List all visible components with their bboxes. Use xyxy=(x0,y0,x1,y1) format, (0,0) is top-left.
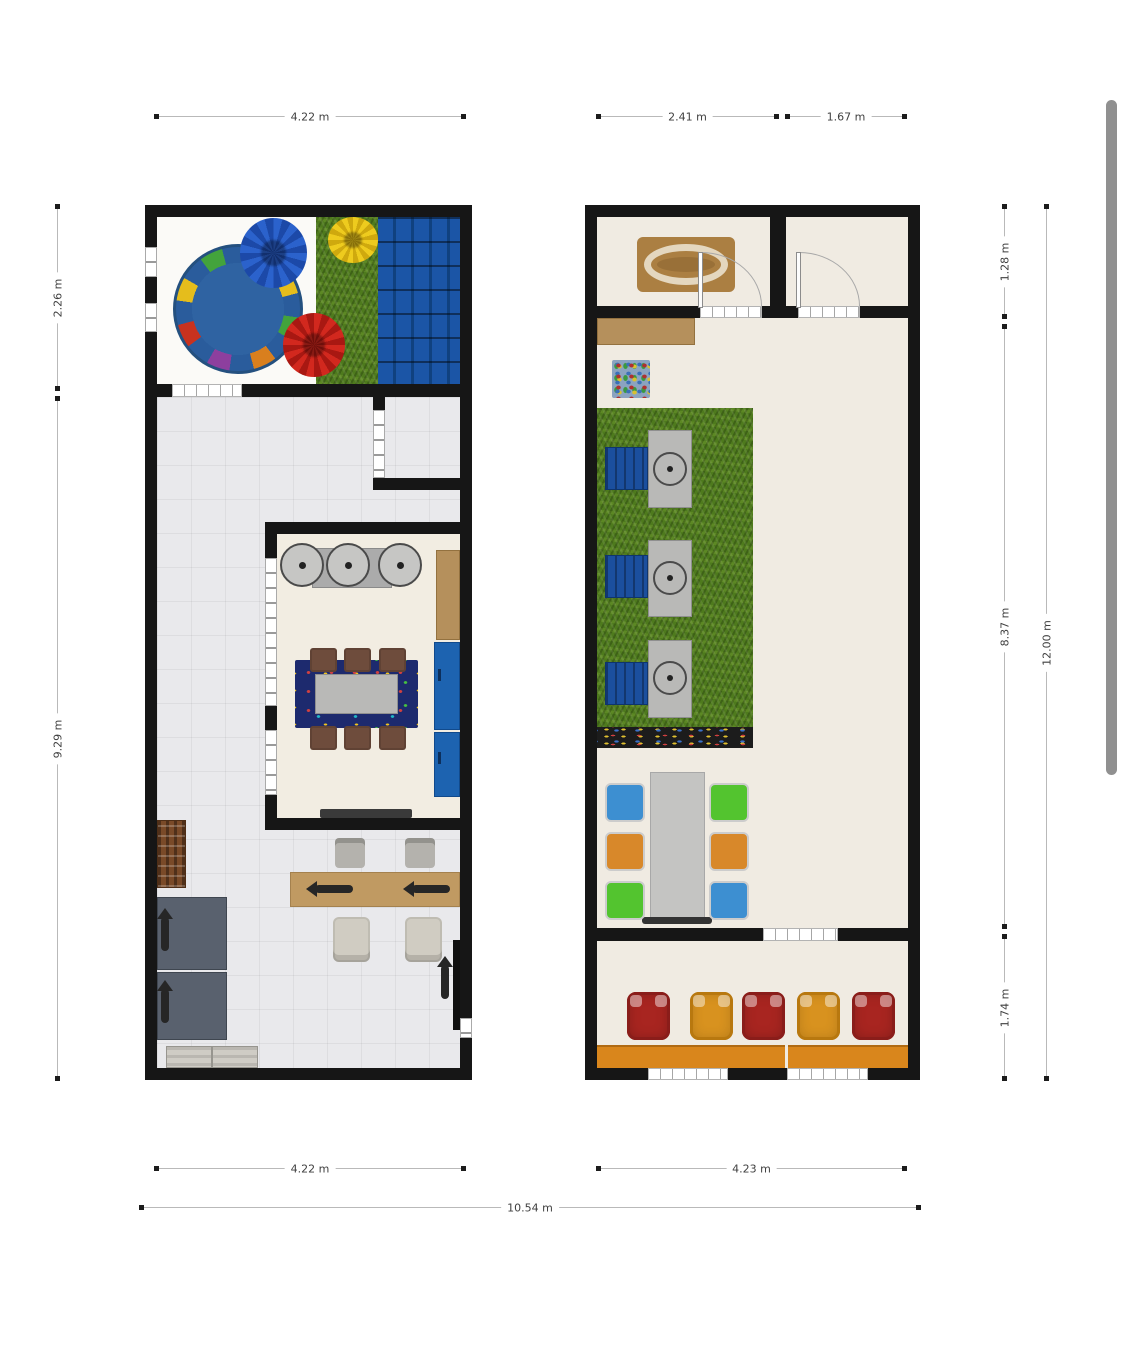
dimension-plan1-bottom: 4.22 m xyxy=(155,1168,465,1169)
door-panel xyxy=(698,252,703,308)
dimension-label: 1.67 m xyxy=(821,111,872,124)
office-chair xyxy=(335,838,365,868)
station-stool xyxy=(653,452,687,486)
dimension-plan1-left-upper: 2.26 m xyxy=(57,205,58,390)
floor-plan-left xyxy=(145,205,472,1080)
wall xyxy=(265,818,460,830)
window-bench-counter xyxy=(597,1045,785,1068)
tv-bracket-glyph xyxy=(441,965,449,999)
desk-lamp-glyph xyxy=(412,885,450,893)
kid-chair-green xyxy=(605,881,645,920)
door-threshold xyxy=(798,306,860,318)
tan-counter xyxy=(436,550,460,640)
dimension-label: 2.41 m xyxy=(662,111,713,124)
nap-mats xyxy=(378,217,460,384)
dimension-plan2-top-left: 2.41 m xyxy=(597,116,778,117)
kid-chair-orange xyxy=(709,832,749,871)
dining-chair xyxy=(379,726,406,750)
dimension-plan1-left-lower: 9.29 m xyxy=(57,397,58,1080)
kitchen-bench xyxy=(320,809,412,818)
window-opening xyxy=(787,1068,868,1080)
blue-cabinet xyxy=(434,642,460,730)
bookshelf xyxy=(157,820,186,888)
dining-table xyxy=(315,674,398,714)
dimension-label: 8.37 m xyxy=(999,601,1012,652)
dimension-label: 2.26 m xyxy=(52,272,65,323)
dimension-label: 4.23 m xyxy=(726,1163,777,1176)
dimension-plan2-right-total: 12.00 m xyxy=(1046,205,1047,1080)
window-opening xyxy=(145,303,157,332)
bean-bag-yellow xyxy=(328,217,378,263)
bean-bag-blue xyxy=(240,218,307,288)
bench xyxy=(166,1046,258,1068)
floor-plan-viewer: 4.22 m 2.41 m 1.67 m 2.26 m 9.29 m 1.28 … xyxy=(0,0,1125,1355)
door-swing-arc xyxy=(701,252,762,306)
toy-shelf xyxy=(597,727,753,748)
dimension-plan2-bottom: 4.23 m xyxy=(597,1168,906,1169)
wall xyxy=(265,522,460,534)
window-opening xyxy=(145,247,157,277)
door-threshold xyxy=(700,306,762,318)
wall xyxy=(838,928,908,941)
table-handle-glyph xyxy=(161,989,169,1023)
door-opening xyxy=(265,730,277,795)
door-opening xyxy=(265,558,277,706)
dimension-overall-bottom: 10.54 m xyxy=(140,1207,920,1208)
nap-mat xyxy=(605,447,648,490)
dimension-label: 1.74 m xyxy=(999,982,1012,1033)
armchair-orange xyxy=(797,992,840,1040)
office-chair xyxy=(333,917,370,962)
kid-chair-blue xyxy=(709,881,749,920)
dimension-label: 12.00 m xyxy=(1041,614,1054,672)
dimension-label: 9.29 m xyxy=(52,713,65,764)
blue-cabinet xyxy=(434,732,460,797)
dimension-plan2-right-middle: 8.37 m xyxy=(1004,325,1005,928)
window-opening xyxy=(648,1068,728,1080)
table-bench xyxy=(642,917,712,924)
play-mat-rug xyxy=(612,360,650,398)
armchair-red xyxy=(627,992,670,1040)
armchair-orange xyxy=(690,992,733,1040)
door-opening xyxy=(460,1018,472,1038)
window-bench-counter xyxy=(788,1045,908,1068)
dining-chair xyxy=(310,726,337,750)
dimension-label: 4.22 m xyxy=(285,1163,336,1176)
door-swing-arc xyxy=(799,252,860,306)
floor-plan-right xyxy=(585,205,920,1080)
kid-chair-blue xyxy=(605,783,645,822)
side-counter xyxy=(597,318,695,345)
office-chair xyxy=(405,838,435,868)
kid-chair-orange xyxy=(605,832,645,871)
wall xyxy=(770,217,786,318)
dining-chair xyxy=(344,648,371,672)
door-panel xyxy=(796,252,801,308)
kids-table xyxy=(650,772,705,922)
station-stool xyxy=(653,561,687,595)
nap-mat xyxy=(605,555,648,598)
stool xyxy=(378,543,422,587)
dimension-label: 10.54 m xyxy=(501,1202,559,1215)
dimension-plan2-right-lower: 1.74 m xyxy=(1004,935,1005,1080)
dimension-plan2-top-right: 1.67 m xyxy=(786,116,906,117)
dimension-label: 4.22 m xyxy=(285,111,336,124)
door-opening xyxy=(373,410,385,478)
desk-lamp-glyph xyxy=(315,885,353,893)
dining-chair xyxy=(344,726,371,750)
stool xyxy=(280,543,324,587)
wall xyxy=(373,478,460,490)
wall-tv xyxy=(453,940,460,1030)
scrollbar-thumb[interactable] xyxy=(1106,100,1117,775)
dining-chair xyxy=(310,648,337,672)
armchair-red xyxy=(742,992,785,1040)
station-stool xyxy=(653,661,687,695)
wall xyxy=(597,928,763,941)
dimension-plan1-top: 4.22 m xyxy=(155,116,465,117)
nap-mat xyxy=(605,662,648,705)
window-opening xyxy=(763,928,838,941)
stool xyxy=(326,543,370,587)
door-opening xyxy=(172,384,242,397)
dimension-label: 1.28 m xyxy=(999,236,1012,287)
dimension-plan2-right-upper: 1.28 m xyxy=(1004,205,1005,318)
bean-bag-red xyxy=(283,313,345,377)
dining-chair xyxy=(379,648,406,672)
table-handle-glyph xyxy=(161,917,169,951)
armchair-red xyxy=(852,992,895,1040)
kid-chair-green xyxy=(709,783,749,822)
